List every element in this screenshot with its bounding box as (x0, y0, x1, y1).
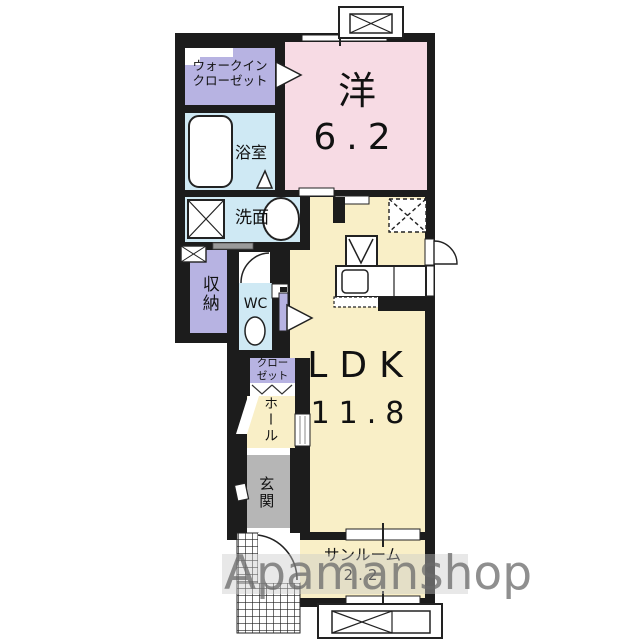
label-bathroom: 浴室 (226, 143, 276, 163)
label-ldk: LDK (297, 344, 425, 388)
refrigerator-space (389, 199, 426, 232)
kitchen-counter (336, 266, 426, 297)
stove (342, 270, 368, 293)
label-walk-in-closet: ウォークイン クローゼット (186, 58, 274, 89)
vent-bottom (318, 604, 442, 638)
wc-door-arc (239, 252, 270, 283)
label-washroom: 洗面 (221, 208, 283, 229)
kitchen-sink (346, 236, 377, 267)
label-ldk-size: 11.8 (292, 396, 432, 433)
storage-vent-box (181, 246, 206, 262)
washroom-rail (213, 243, 253, 249)
sliding-door-west-a (299, 188, 334, 196)
watermark-text: Apamanshop (224, 546, 474, 598)
label-hall: ホール (261, 392, 278, 448)
kitchen-wall-stub (378, 297, 427, 311)
washing-machine (188, 200, 224, 238)
toilet (245, 317, 265, 345)
label-entrance: 玄関 (257, 464, 275, 522)
counter-dashed-edge (334, 297, 380, 307)
kitchen-side-door (425, 239, 457, 265)
floorplan-page: ウォークイン クローゼット 浴室 洋 6.2 洗面 収納 WC クロー ゼット … (0, 0, 640, 640)
label-western-room: 洋 (317, 68, 397, 114)
label-closet: クロー ゼット (250, 357, 295, 383)
label-wc: WC (239, 296, 272, 313)
room-ldk-corridor (290, 250, 310, 358)
vent-top (339, 7, 403, 38)
ldk-wall-stub (333, 197, 345, 223)
hall-threshold (247, 448, 290, 455)
label-western-size: 6.2 (303, 116, 411, 160)
label-storage: 収納 (198, 262, 219, 326)
